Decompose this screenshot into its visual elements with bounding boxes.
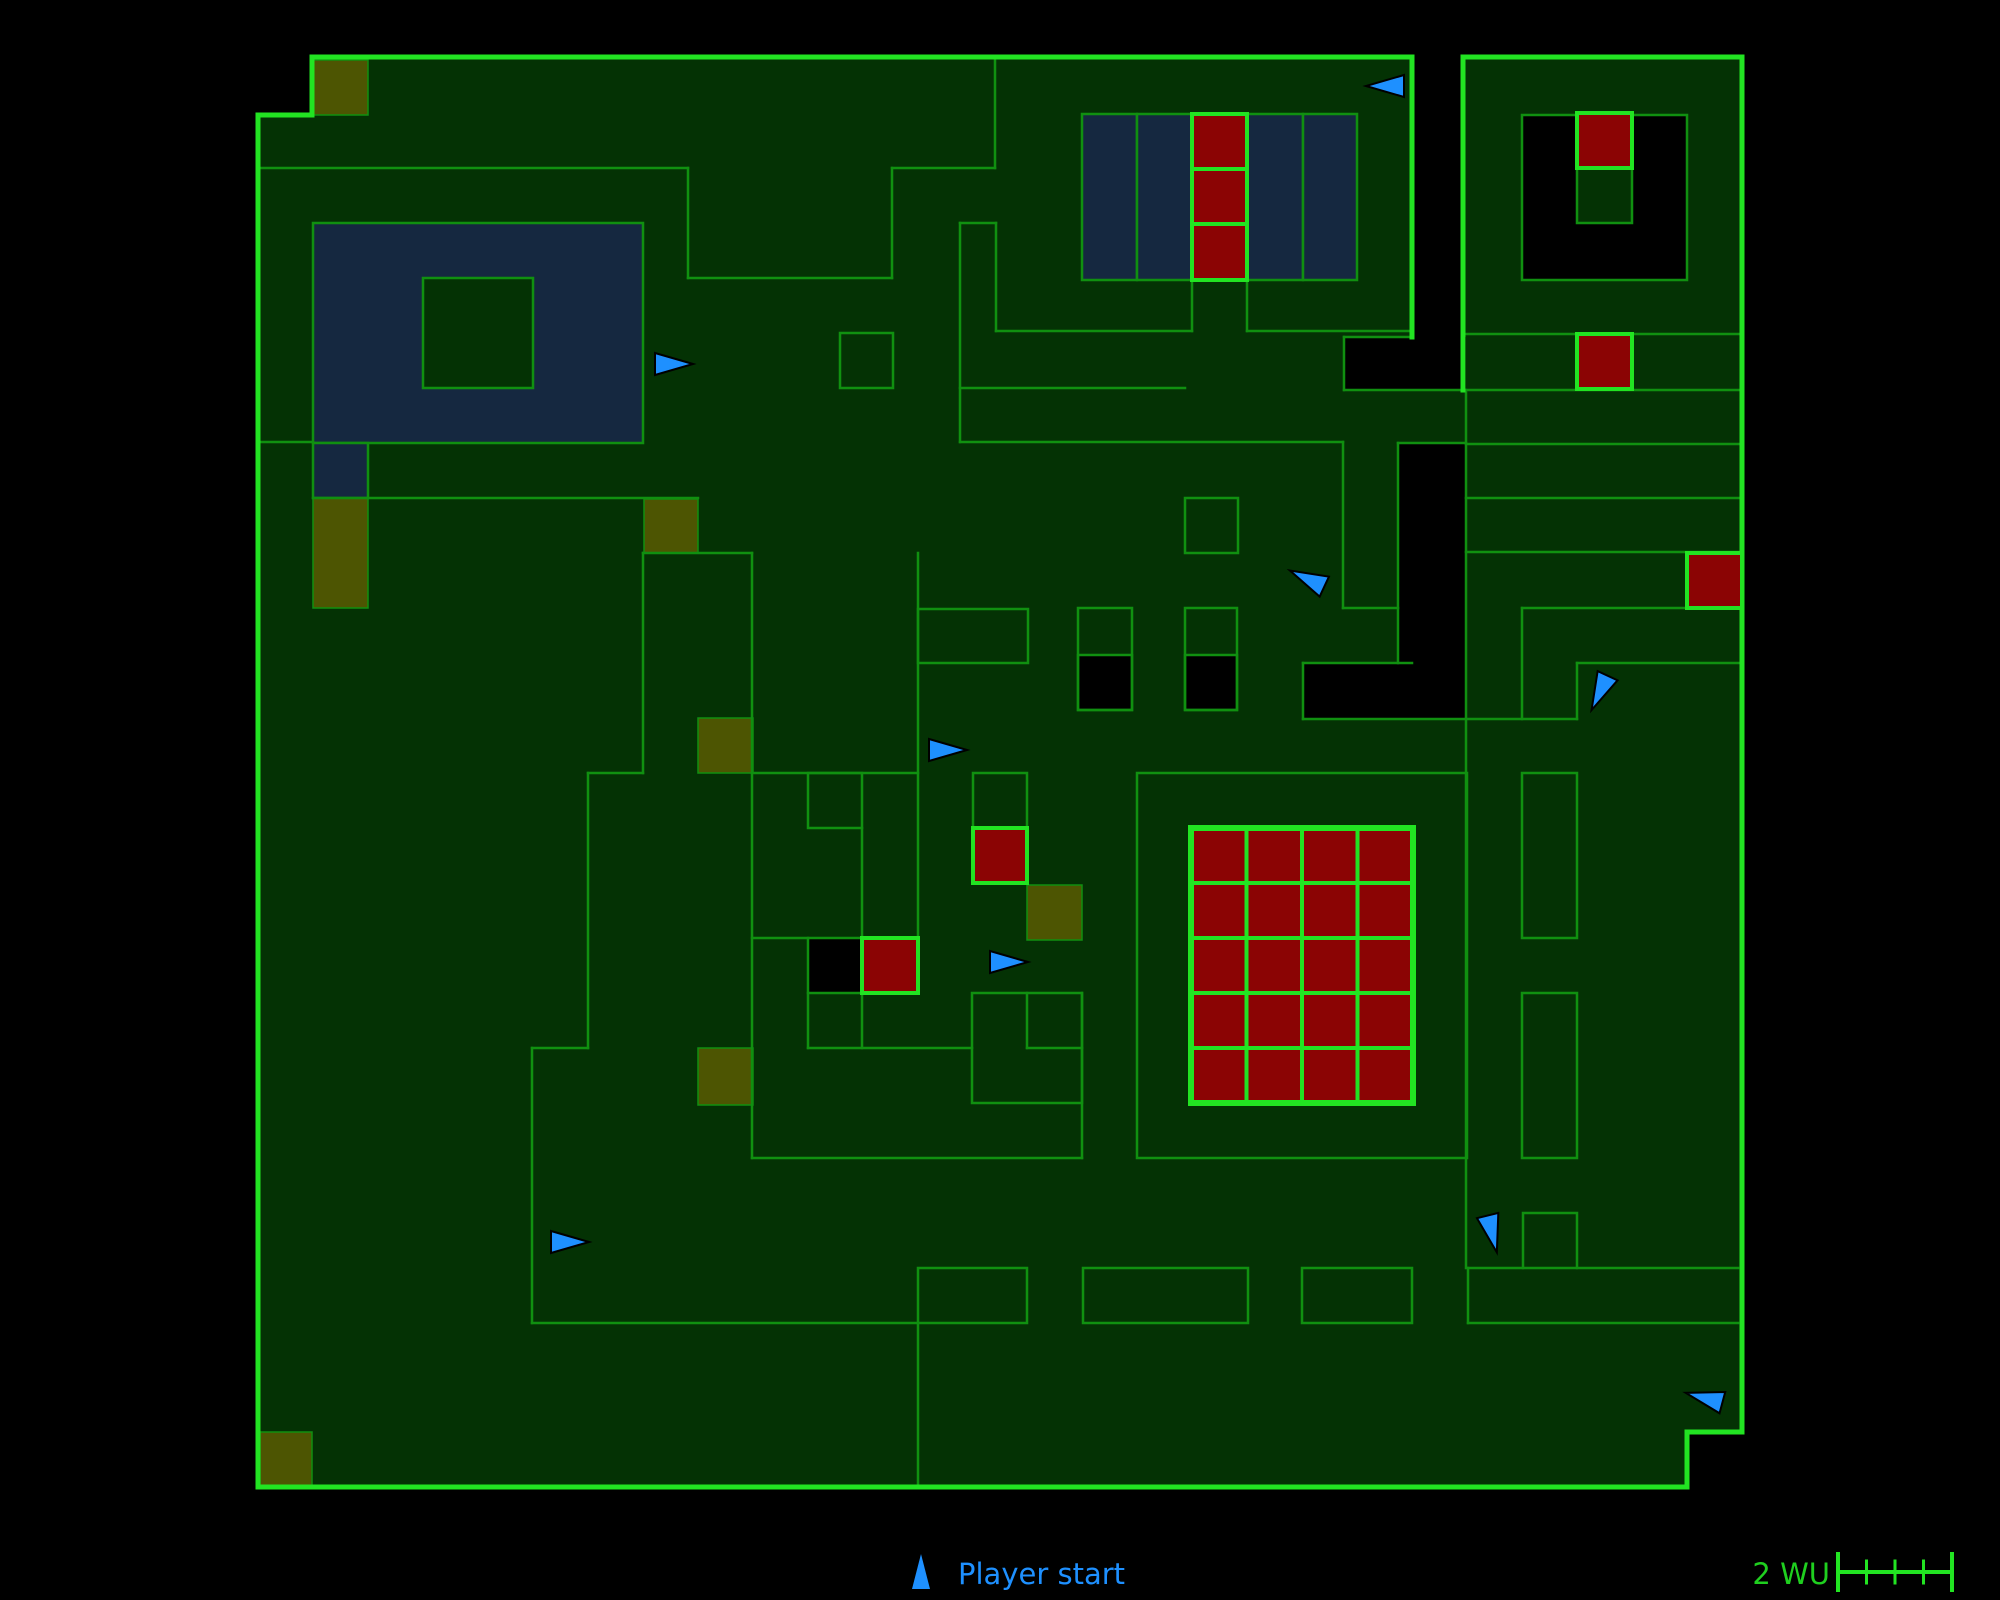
hazard-cell <box>1577 113 1632 168</box>
hazard-cell <box>1687 553 1742 608</box>
hazard-cell <box>1577 334 1632 389</box>
hazard-cell <box>1247 883 1303 938</box>
hazard-cell <box>1247 828 1303 883</box>
scale-bar: 2 WU <box>1752 1554 1952 1591</box>
hazard-cell <box>1358 883 1414 938</box>
scale-label: 2 WU <box>1752 1557 1830 1591</box>
hazard-cell <box>1192 114 1247 169</box>
hazard-cell <box>973 828 1027 883</box>
void-area <box>1303 663 1466 719</box>
void-area <box>1412 57 1463 337</box>
item-square <box>1027 885 1082 940</box>
hazard-cell <box>1191 938 1247 993</box>
hazard-cell <box>1358 993 1414 1048</box>
item-square <box>260 1432 312 1487</box>
water-area <box>1247 114 1303 280</box>
hazard-cell <box>1358 828 1414 883</box>
floor-patch <box>1577 168 1632 223</box>
hazard-cell <box>1302 883 1358 938</box>
pit-cell <box>1078 655 1132 710</box>
pit-cell <box>1185 655 1237 710</box>
hazard-cell <box>1302 938 1358 993</box>
floor-patch <box>423 278 533 388</box>
hazard-cell <box>1192 224 1247 280</box>
void-area <box>258 57 312 115</box>
legend: Player start <box>912 1554 1125 1591</box>
hazard-cell <box>1191 1048 1247 1103</box>
pit-cell <box>808 938 862 993</box>
player-start-label: Player start <box>958 1557 1125 1591</box>
hazard-cell <box>1247 993 1303 1048</box>
player-start-icon <box>912 1554 930 1589</box>
hazard-cell <box>1247 1048 1303 1103</box>
void-area <box>1344 337 1466 390</box>
hazard-cell <box>1247 938 1303 993</box>
item-square <box>644 499 698 553</box>
hazard-cell <box>1302 828 1358 883</box>
item-square <box>698 718 753 773</box>
water-area <box>1303 114 1357 280</box>
hazard-cell <box>862 938 918 993</box>
void-area <box>1398 443 1466 663</box>
hazard-cell <box>1302 993 1358 1048</box>
scale-ruler-icon <box>1838 1554 1952 1590</box>
level-map: Player start 2 WU <box>0 0 2000 1600</box>
hazard-cell <box>1191 883 1247 938</box>
hazard-cell <box>1191 993 1247 1048</box>
hazard-cell <box>1192 169 1247 224</box>
hazard-cell <box>1358 1048 1414 1103</box>
water-area <box>313 443 368 498</box>
hazard-cell <box>1302 1048 1358 1103</box>
hazard-cell <box>1191 828 1247 883</box>
water-area <box>1137 114 1192 280</box>
item-square <box>313 498 368 608</box>
item-square <box>313 60 368 115</box>
floor-area <box>1687 57 1742 1432</box>
map-viewer: Player start 2 WU <box>0 0 2000 1600</box>
water-area <box>1082 114 1137 280</box>
item-square <box>698 1048 753 1105</box>
hazard-cell <box>1358 938 1414 993</box>
